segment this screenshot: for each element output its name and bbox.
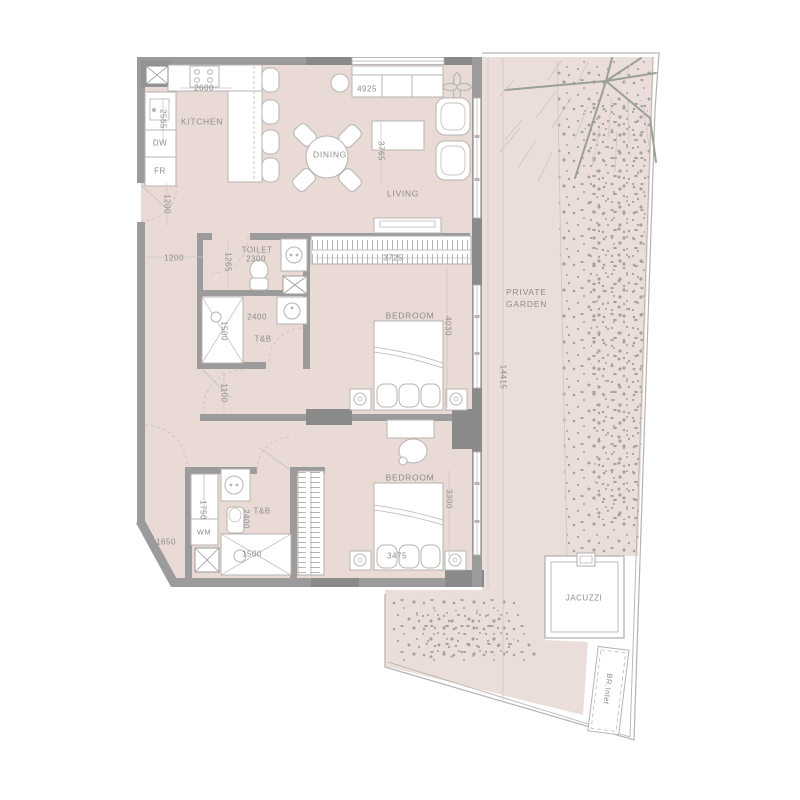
dim-toilet-depth: 1265 bbox=[224, 252, 233, 272]
dim-entry-hall: 1200 bbox=[163, 194, 172, 214]
room-label-tb1: T&B bbox=[254, 335, 271, 344]
dim-corridor: 1100 bbox=[220, 383, 229, 402]
dim-shower1: 1500 bbox=[220, 321, 229, 341]
dim-tb2-width: 1650 bbox=[156, 538, 176, 547]
dim-bedroom1-depth: 4030 bbox=[444, 316, 453, 336]
dim-living-sofa-wall: 4925 bbox=[357, 85, 377, 94]
dim-kitchen-depth: 2565 bbox=[159, 109, 168, 129]
room-label-bedroom2: BEDROOM bbox=[386, 474, 435, 483]
room-label-toilet: TOILET bbox=[242, 246, 273, 255]
dim-toilet-width: 2300 bbox=[246, 255, 266, 264]
appliance-label-fr: FR bbox=[154, 167, 166, 176]
floor-plan-svg bbox=[0, 0, 800, 800]
floor-plan-canvas: KITCHEN DINING LIVING TOILET 2300 T&B BE… bbox=[0, 0, 800, 800]
dim-wardrobe1: 3725 bbox=[383, 254, 403, 263]
dim-garden-length: 14415 bbox=[499, 365, 508, 390]
dim-living-depth: 3765 bbox=[377, 141, 386, 161]
room-label-living: LIVING bbox=[387, 190, 419, 199]
dim-bedroom2-depth: 3300 bbox=[445, 489, 454, 509]
dim-tb2-depth: 1750 bbox=[199, 500, 208, 520]
wardrobe-bedroom2 bbox=[298, 471, 324, 575]
dim-bedroom2-width: 3475 bbox=[387, 552, 407, 561]
appliance-label-dw: DW bbox=[153, 139, 167, 148]
room-label-jacuzzi: JACUZZI bbox=[566, 594, 602, 603]
room-label-private-garden: PRIVATE GARDEN bbox=[506, 287, 564, 310]
room-label-bedroom1: BEDROOM bbox=[386, 312, 435, 321]
room-label-tb2: T&B bbox=[253, 507, 270, 516]
dim-tb2-inner: 2400 bbox=[242, 509, 251, 529]
appliance-label-wm: WM bbox=[197, 528, 211, 537]
dim-shower2: 1500 bbox=[242, 550, 262, 559]
room-label-kitchen: KITCHEN bbox=[181, 118, 223, 127]
room-label-dining: DINING bbox=[313, 151, 347, 160]
dim-tb1-width: 2400 bbox=[247, 313, 267, 322]
dim-kitchen-counter: 2600 bbox=[194, 84, 214, 93]
dim-hall-width: 1200 bbox=[164, 254, 184, 263]
